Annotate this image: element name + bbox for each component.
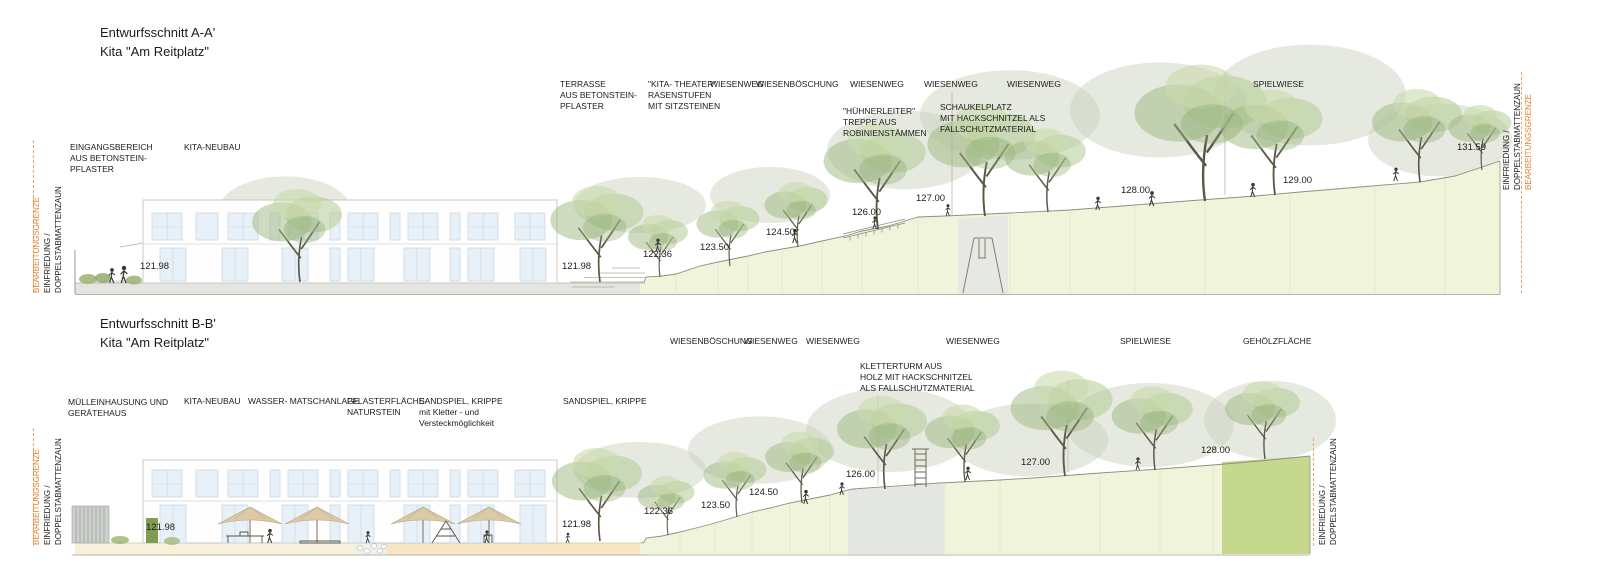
einfriedung-label: EINFRIEDUNG / (1317, 438, 1328, 545)
elevation-marker: 126.00 (852, 207, 881, 218)
bearbeitungsgrenze-label: BEARBEITUNGSGRENZE (31, 186, 42, 293)
label-gehoelzflaeche: GEHÖLZFLÄCHE (1243, 336, 1312, 347)
label-wiesenweg-b2: WIESENWEG (806, 336, 860, 347)
elevation-marker: 121.98 (562, 261, 591, 272)
gehoelz-block-b (1222, 456, 1310, 554)
einfriedung-label: EINFRIEDUNG / (1501, 83, 1512, 190)
section-drawing-sheet: Entwurfsschnitt A-A' Kita "Am Reitplatz"… (0, 0, 1600, 588)
zaun-label: DOPPELSTABMATTENZAUN (53, 438, 64, 545)
label-sandspiel-krippe-2: SANDSPIEL, KRIPPE (563, 396, 647, 407)
edge-labels-left-a: BEARBEITUNGSGRENZE EINFRIEDUNG / DOPPELS… (31, 186, 64, 293)
elevation-marker: 129.00 (1283, 175, 1312, 186)
section-a-title: Entwurfsschnitt A-A' Kita "Am Reitplatz" (100, 24, 215, 62)
label-spielwiese-a: SPIELWIESE (1253, 79, 1304, 90)
label-kita-neubau-b: KITA-NEUBAU (184, 396, 241, 407)
label-schaukelplatz: SCHAUKELPLATZ MIT HACKSCHNITZEL ALS FALL… (940, 102, 1045, 135)
kletterturm-pit-gray-b (848, 484, 945, 554)
sand-strip-b (387, 543, 645, 555)
elevation-marker: 123.50 (701, 500, 730, 511)
label-wiesenweg-b1: WIESENWEG (744, 336, 798, 347)
elevation-marker: 121.98 (146, 522, 175, 533)
label-kletterturm: KLETTERTURM AUS HOLZ MIT HACKSCHNITZEL A… (860, 361, 975, 394)
label-sandspiel-krippe-1: SANDSPIEL, KRIPPE mit Kletter - und Vers… (419, 396, 503, 429)
label-muelleinhausung: MÜLLEINHAUSUNG UND GERÄTEHAUS (68, 397, 168, 419)
zaun-label: DOPPELSTABMATTENZAUN (1328, 438, 1339, 545)
elevation-marker: 123.50 (700, 242, 729, 253)
kita-building-b (72, 460, 557, 545)
label-terrasse: TERRASSE AUS BETONSTEIN- PFLASTER (560, 79, 637, 112)
windows-upper-a (152, 213, 545, 240)
elevation-marker: 127.00 (916, 193, 945, 204)
zaun-label: DOPPELSTABMATTENZAUN (53, 186, 64, 293)
elevation-marker: 124.50 (749, 487, 778, 498)
label-kita-neubau-a: KITA-NEUBAU (184, 142, 241, 153)
label-pflasterflaeche: PFLASTERFLÄCHE- NATURSTEIN (347, 396, 427, 418)
windows-upper-b (152, 470, 545, 497)
zaun-label: DOPPELSTABMATTENZAUN (1512, 83, 1523, 190)
label-wiesenweg-a2: WIESENWEG (850, 79, 904, 90)
elevation-marker: 126.00 (846, 469, 875, 480)
label-wiesenweg-a3: WIESENWEG (924, 79, 978, 90)
elevation-marker: 122.36 (644, 506, 673, 517)
label-wiesenweg-a4: WIESENWEG (1007, 79, 1061, 90)
label-spielwiese-b: SPIELWIESE (1120, 336, 1171, 347)
label-wiesenboeschung-b: WIESENBÖSCHUNG (670, 336, 753, 347)
label-wasser-matschanlage: WASSER- MATSCHANLAGE (248, 396, 359, 407)
terrace-strip-b (75, 543, 355, 555)
label-eingangsbereich: EINGANGSBEREICH AUS BETONSTEIN- PFLASTER (70, 142, 153, 175)
elevation-marker: 127.00 (1021, 457, 1050, 468)
elevation-marker: 122.36 (643, 249, 672, 260)
muellhaus-box (72, 506, 109, 543)
section-b-title: Entwurfsschnitt B-B' Kita "Am Reitplatz" (100, 315, 216, 353)
einfriedung-label: EINFRIEDUNG / (42, 186, 53, 293)
elevation-marker: 131.59 (1457, 142, 1486, 153)
label-wiesenboeschung-a: WIESENBÖSCHUNG (756, 79, 839, 90)
terrace-strip-a (75, 283, 645, 294)
bearbeitungsgrenze-label: BEARBEITUNGSGRENZE (31, 438, 42, 545)
label-huehnerleiter: "HÜHNERLEITER" TREPPE AUS ROBINIENSTÄMME… (843, 106, 927, 139)
elevation-marker: 121.98 (562, 519, 591, 530)
edge-labels-right-b: EINFRIEDUNG / DOPPELSTABMATTENZAUN (1317, 438, 1339, 545)
elevation-marker: 124.50 (766, 227, 795, 238)
elevation-marker: 128.00 (1121, 185, 1150, 196)
label-wiesenweg-b3: WIESENWEG (946, 336, 1000, 347)
bearbeitungsgrenze-label: BEARBEITUNGSGRENZE (1523, 83, 1534, 190)
elevation-marker: 128.00 (1201, 445, 1230, 456)
edge-labels-right-a: EINFRIEDUNG / DOPPELSTABMATTENZAUN BEARB… (1501, 83, 1534, 190)
edge-labels-left-b: BEARBEITUNGSGRENZE EINFRIEDUNG / DOPPELS… (31, 438, 64, 545)
elevation-marker: 121.98 (140, 261, 169, 272)
boundary-line-right-b (1313, 438, 1314, 546)
einfriedung-label: EINFRIEDUNG / (42, 438, 53, 545)
